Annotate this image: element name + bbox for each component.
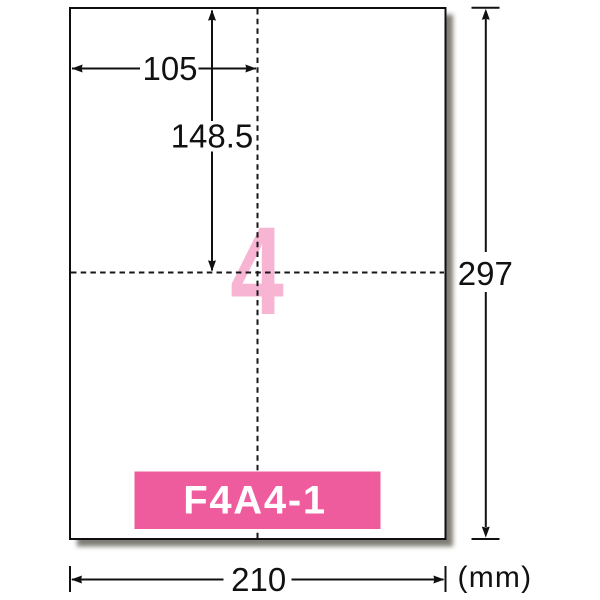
- svg-text:148.5: 148.5: [171, 118, 254, 155]
- svg-text:297: 297: [458, 255, 513, 292]
- svg-text:F4A4-1: F4A4-1: [183, 479, 327, 523]
- svg-text:(mm): (mm): [458, 561, 533, 594]
- svg-text:210: 210: [231, 561, 286, 598]
- svg-text:105: 105: [142, 50, 197, 87]
